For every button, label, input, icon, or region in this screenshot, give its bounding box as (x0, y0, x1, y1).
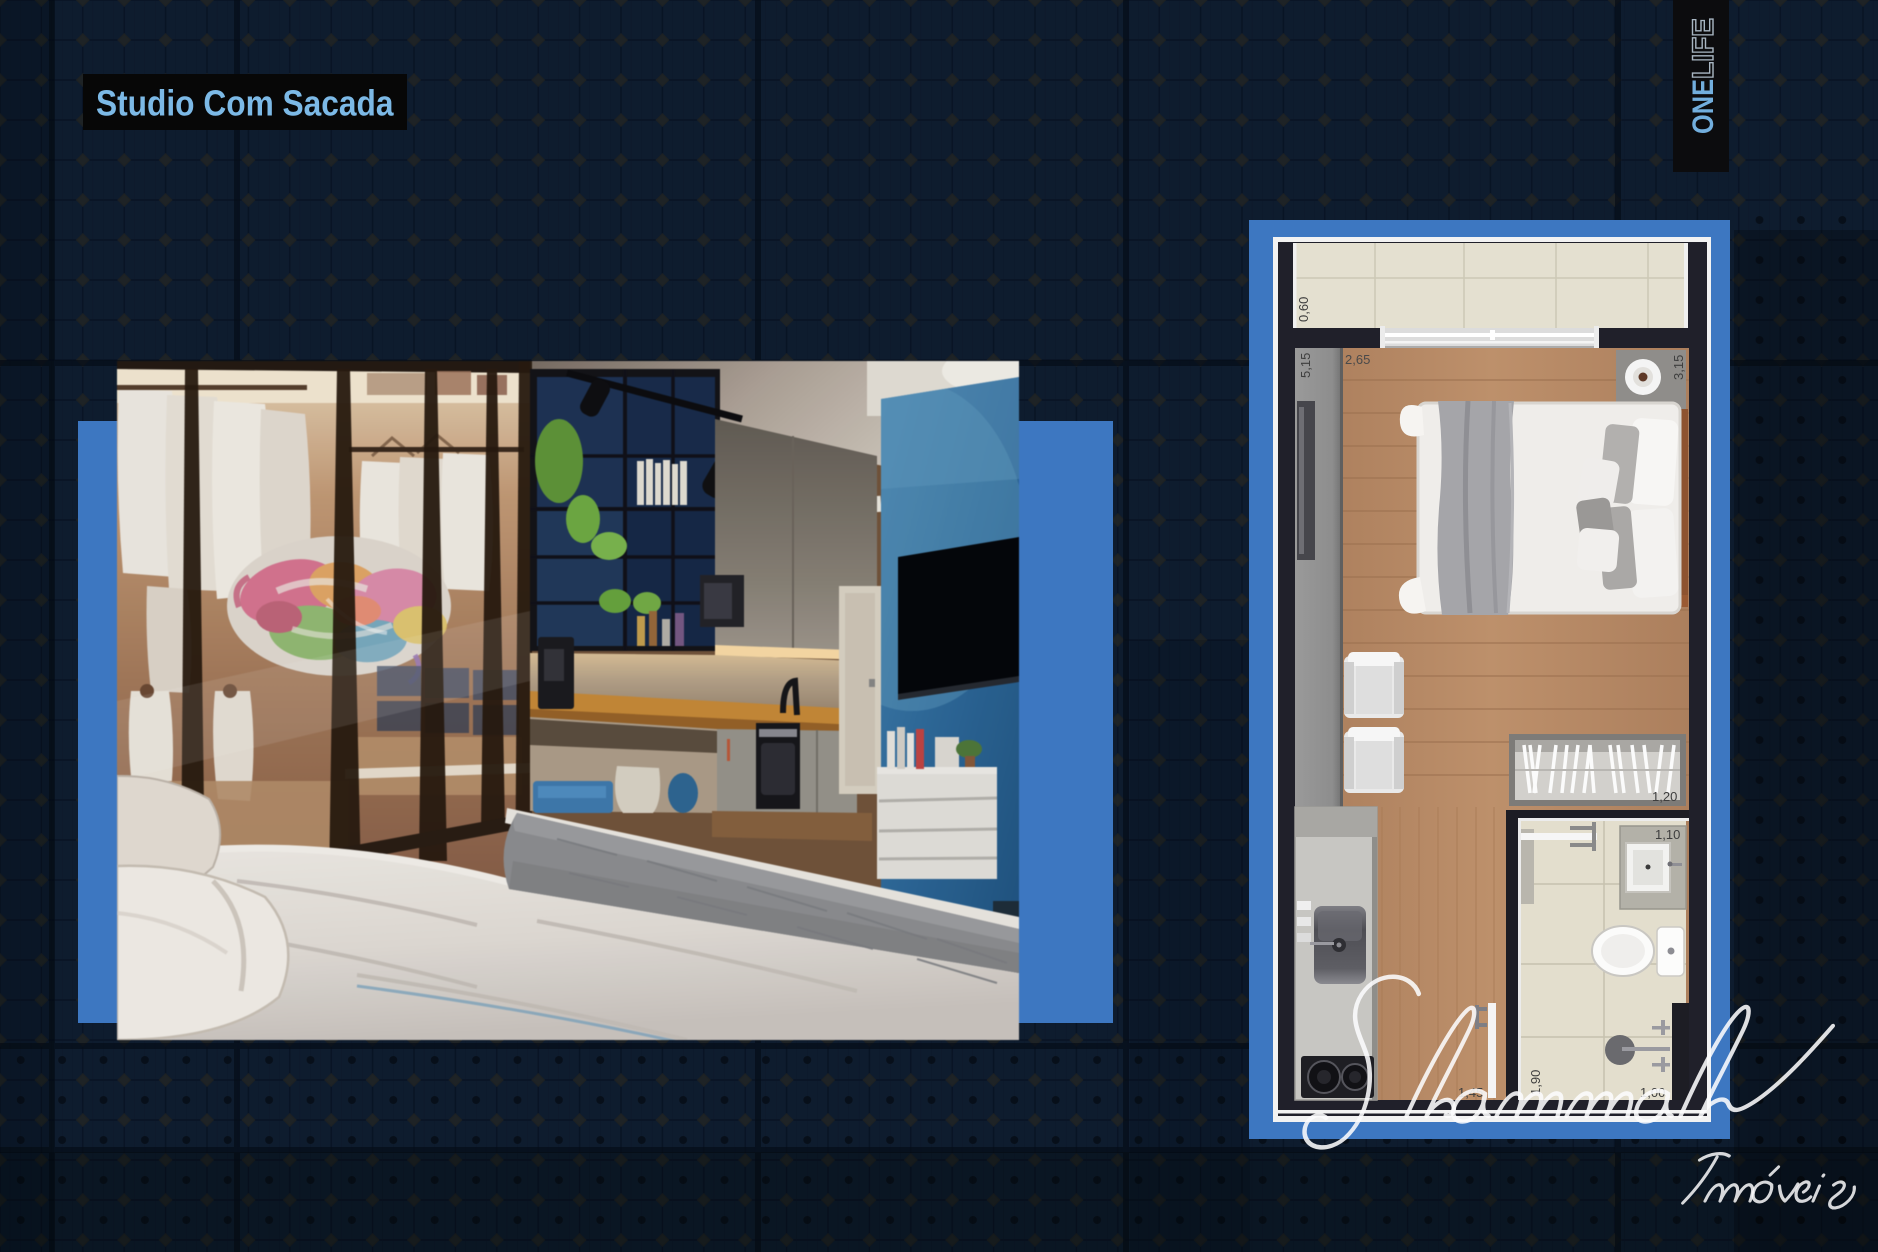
svg-text:0,60: 0,60 (1296, 297, 1311, 322)
svg-text:1,20: 1,20 (1652, 789, 1677, 804)
svg-text:5,15: 5,15 (1298, 353, 1313, 378)
svg-text:1,10: 1,10 (1655, 827, 1680, 842)
svg-text:3,15: 3,15 (1671, 355, 1686, 380)
svg-text:LIFE: LIFE (1687, 18, 1720, 79)
svg-text:ONE: ONE (1687, 79, 1720, 134)
svg-text:2,65: 2,65 (1345, 352, 1370, 367)
